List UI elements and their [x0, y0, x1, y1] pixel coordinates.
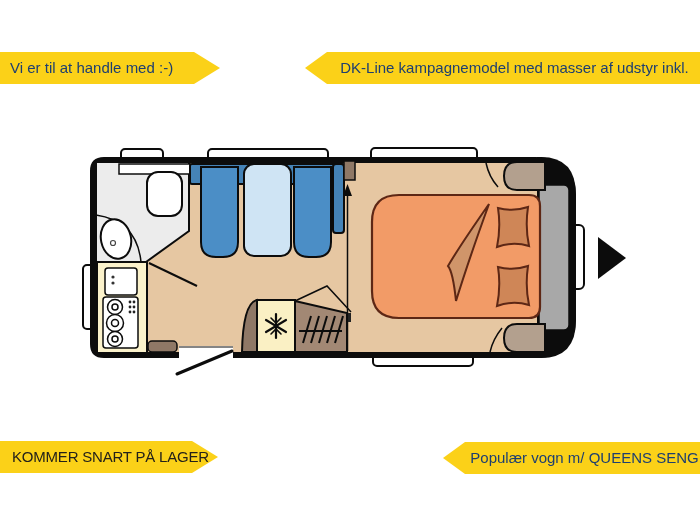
corner-shelf-top	[504, 162, 545, 190]
pillow-icon	[497, 266, 529, 306]
dinette	[190, 164, 344, 257]
tap-dot	[111, 275, 114, 278]
burner-center	[112, 320, 119, 327]
dinette-bench-right	[294, 167, 331, 257]
front-direction-arrow-icon	[598, 237, 626, 279]
pillow-icon	[497, 207, 529, 247]
corner-shelf-bottom	[504, 324, 545, 352]
burner-center	[112, 336, 118, 342]
entrance-step	[148, 341, 177, 352]
front-storage-band	[539, 185, 569, 330]
dinette-table	[244, 164, 291, 256]
queens-bed	[372, 195, 540, 318]
burner-center	[112, 304, 118, 310]
dinette-bench-left	[201, 167, 238, 257]
kitchen-sink-icon	[105, 268, 137, 295]
dinette-side-backrest	[333, 164, 344, 233]
kitchen	[97, 262, 147, 353]
toilet-icon	[147, 172, 182, 216]
caravan-floorplan	[0, 0, 700, 525]
promo-image: Vi er til at handle med :-) DK-Line kamp…	[0, 0, 700, 525]
tap-dot	[111, 281, 114, 284]
top-cabinet	[344, 161, 355, 180]
